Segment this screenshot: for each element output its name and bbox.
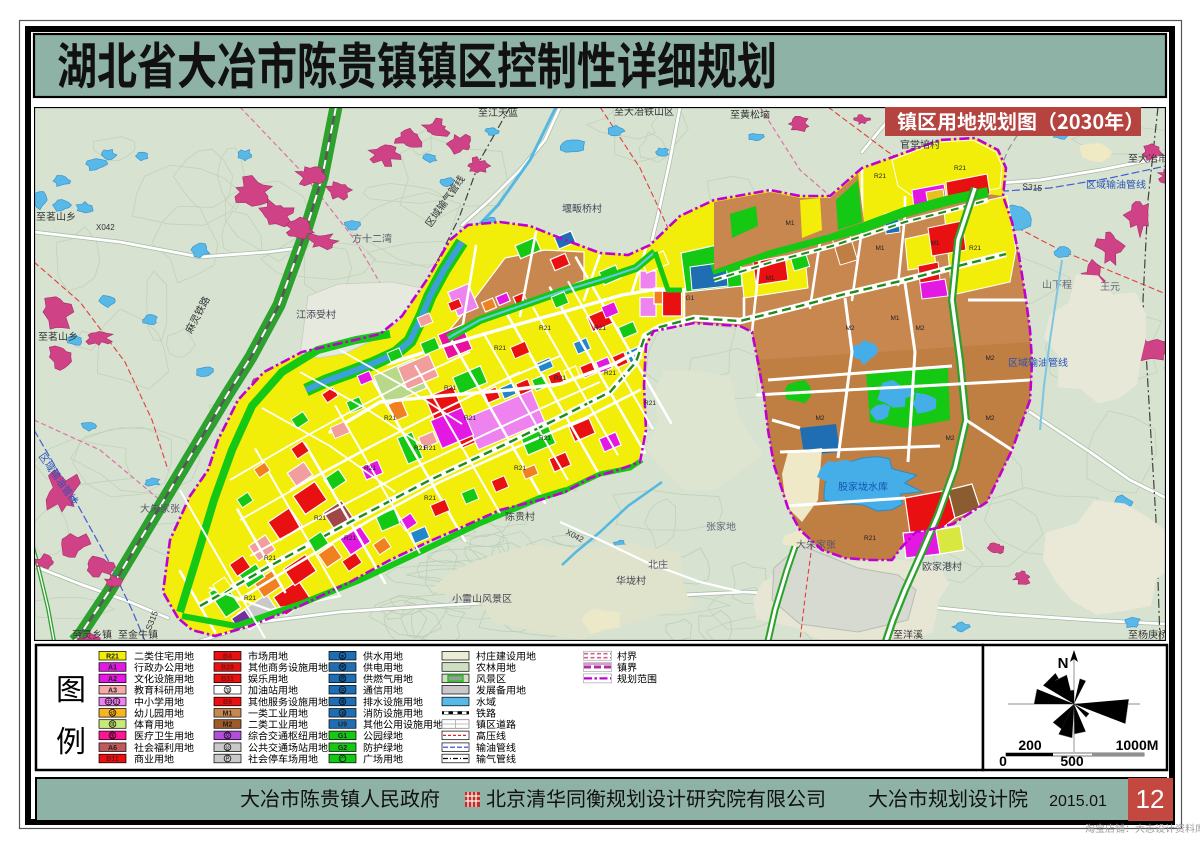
svg-text:12: 12	[1136, 784, 1165, 814]
svg-text:A6: A6	[108, 745, 117, 752]
svg-text:B29: B29	[221, 665, 234, 672]
svg-text:M1: M1	[223, 710, 233, 717]
svg-text:公: 公	[225, 745, 230, 751]
svg-text:M2: M2	[915, 325, 924, 332]
svg-text:R21: R21	[384, 415, 396, 422]
svg-text:广: 广	[340, 756, 345, 763]
svg-text:加: 加	[225, 687, 230, 694]
svg-text:M2: M2	[845, 325, 854, 332]
svg-text:1000M: 1000M	[1116, 737, 1159, 753]
svg-text:R21: R21	[604, 370, 616, 377]
svg-text:R21: R21	[874, 173, 886, 180]
svg-text:交: 交	[225, 733, 230, 740]
svg-text:R21: R21	[364, 465, 376, 472]
svg-text:G1: G1	[686, 295, 695, 302]
svg-text:200: 200	[1018, 737, 1042, 753]
svg-text:M2: M2	[985, 415, 994, 422]
svg-text:M2: M2	[223, 722, 233, 729]
svg-text:R21: R21	[464, 415, 476, 422]
svg-text:R21: R21	[494, 345, 506, 352]
svg-text:G1: G1	[338, 733, 347, 740]
svg-text:R21: R21	[106, 653, 119, 660]
svg-text:信: 信	[340, 687, 345, 694]
svg-text:燃: 燃	[340, 676, 345, 683]
svg-text:2015.01: 2015.01	[1049, 793, 1107, 810]
svg-text:M1: M1	[930, 240, 939, 247]
svg-text:R21: R21	[594, 325, 606, 332]
svg-text:B9: B9	[223, 699, 232, 706]
svg-text:R21: R21	[539, 435, 551, 442]
svg-text:M2: M2	[945, 435, 954, 442]
svg-text:N: N	[1058, 655, 1069, 672]
svg-text:R21: R21	[954, 165, 966, 172]
svg-text:R21: R21	[554, 375, 566, 382]
svg-text:X042: X042	[96, 223, 115, 232]
svg-text:R21: R21	[424, 495, 436, 502]
svg-text:A2: A2	[108, 676, 117, 683]
svg-text:B31: B31	[221, 676, 234, 683]
svg-text:A1: A1	[108, 665, 117, 672]
svg-text:R21: R21	[414, 445, 426, 452]
svg-text:R21: R21	[444, 385, 456, 392]
svg-text:R21: R21	[514, 465, 526, 472]
svg-text:M1: M1	[765, 275, 774, 282]
svg-text:G2: G2	[338, 745, 347, 752]
svg-text:S315: S315	[1022, 181, 1043, 193]
svg-text:M2: M2	[815, 415, 824, 422]
svg-text:医: 医	[110, 734, 115, 740]
svg-text:U9: U9	[338, 722, 347, 729]
svg-text:R21: R21	[969, 245, 981, 252]
svg-text:B11: B11	[106, 756, 119, 763]
svg-text:R21: R21	[344, 535, 356, 542]
svg-text:消: 消	[340, 710, 345, 717]
svg-text:R21: R21	[539, 325, 551, 332]
svg-text:幼: 幼	[110, 710, 115, 717]
svg-text:M1: M1	[875, 245, 884, 252]
svg-text:R21: R21	[644, 400, 656, 407]
svg-text:R21: R21	[264, 555, 276, 562]
svg-text:水: 水	[340, 653, 345, 660]
svg-text:小: 小	[114, 699, 119, 706]
svg-text:A3: A3	[108, 687, 117, 694]
svg-text:R21: R21	[244, 595, 256, 602]
svg-text:中: 中	[106, 699, 111, 706]
svg-text:M1: M1	[785, 220, 794, 227]
svg-text:M2: M2	[985, 355, 994, 362]
svg-text:R21: R21	[314, 515, 326, 522]
svg-text:M1: M1	[890, 315, 899, 322]
svg-text:R21: R21	[864, 535, 876, 542]
svg-text:体: 体	[110, 721, 115, 728]
svg-text:排: 排	[340, 699, 345, 706]
svg-text:B4: B4	[223, 653, 232, 660]
svg-text:电: 电	[340, 664, 345, 671]
